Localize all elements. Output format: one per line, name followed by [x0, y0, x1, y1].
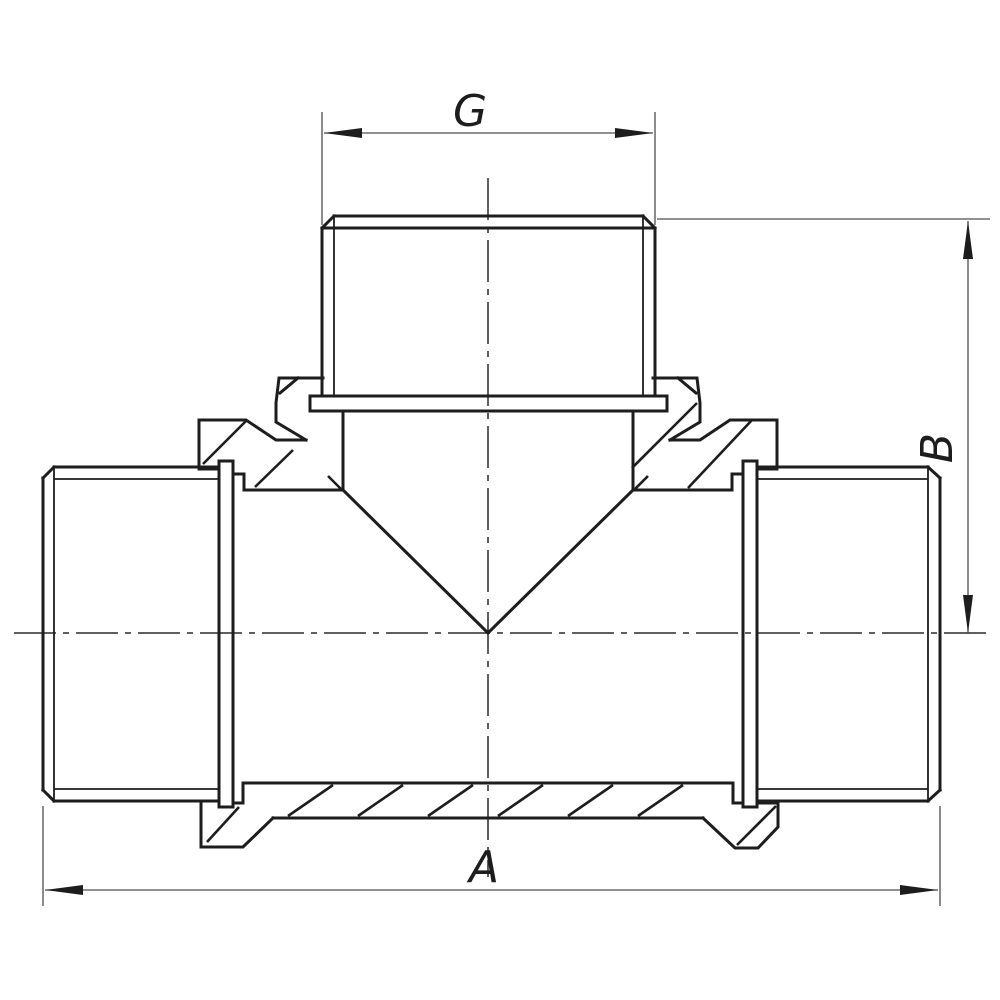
- hex-pentagon-right: [653, 378, 700, 440]
- left-branch-thread-root-lines: [54, 467, 219, 801]
- hex-quad-left: [199, 420, 306, 469]
- tee-fitting-section-drawing: G A B: [0, 0, 1000, 1000]
- hatch-line: [255, 450, 293, 487]
- hatch-line: [207, 807, 239, 842]
- right-branch-thread-root-lines: [757, 467, 928, 801]
- hatch-line: [632, 403, 697, 468]
- drawing-canvas: G A B: [0, 0, 1000, 1000]
- dimension-a-arrow-right: [900, 885, 938, 895]
- hatch-line: [568, 785, 613, 816]
- hatch-line: [428, 785, 473, 816]
- dimension-a-arrow-left: [45, 885, 83, 895]
- hex-pentagon-left: [276, 378, 323, 440]
- hatch-line: [328, 476, 342, 490]
- hex-pentagon-left-chamfer: [280, 378, 298, 393]
- left-branch-outline: [43, 467, 219, 801]
- dimension-b-arrow-top: [963, 221, 973, 259]
- right-branch-outline: [757, 467, 940, 801]
- dimension-label-a: A: [466, 842, 499, 893]
- left-branch-flange: [219, 461, 233, 807]
- dimension-g-arrow-right: [615, 128, 653, 138]
- hex-pentagon-right-chamfer: [678, 378, 696, 393]
- right-branch-thread: [743, 461, 940, 807]
- hatch-line: [203, 421, 246, 464]
- dimension-b-arrow-bottom: [963, 595, 973, 633]
- right-branch-flange: [743, 461, 757, 807]
- hex-quad-right: [670, 420, 777, 469]
- hatch-line: [498, 785, 543, 816]
- center-lines: [14, 178, 988, 877]
- bottom-wall-section: [201, 783, 778, 848]
- hatch-line: [634, 476, 648, 490]
- left-branch-thread: [43, 461, 233, 807]
- hatch-line: [737, 806, 776, 845]
- dimension-a: A: [43, 806, 940, 906]
- dimension-label-g: G: [453, 86, 487, 137]
- dimension-g-arrow-left: [324, 128, 362, 138]
- dimension-label-b: B: [912, 433, 963, 463]
- hatch-line: [288, 785, 333, 816]
- hatch-line: [638, 785, 683, 816]
- hatch-line: [358, 785, 403, 816]
